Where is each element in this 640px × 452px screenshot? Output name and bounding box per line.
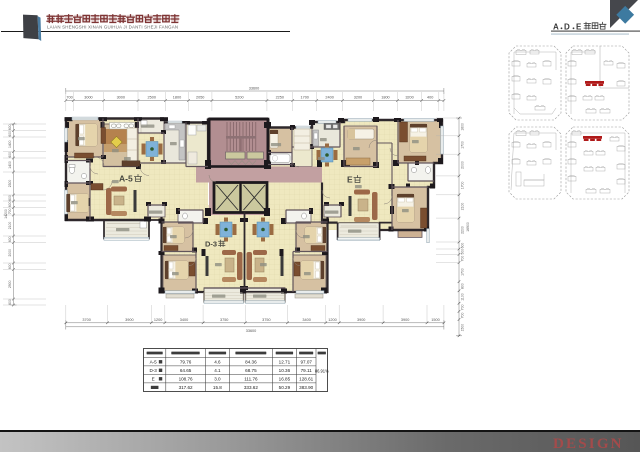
svg-text:64.65: 64.65: [180, 368, 192, 373]
svg-text:2500: 2500: [148, 96, 156, 100]
svg-text:4.1: 4.1: [214, 368, 221, 373]
svg-text:A-5: A-5: [119, 174, 133, 184]
svg-text:600: 600: [8, 201, 12, 207]
svg-text:2200: 2200: [461, 226, 465, 234]
svg-text:400: 400: [427, 96, 433, 100]
svg-text:68.75: 68.75: [245, 368, 257, 373]
svg-text:700: 700: [461, 313, 465, 319]
svg-text:4.6: 4.6: [214, 360, 221, 365]
svg-text:86.91%: 86.91%: [315, 369, 329, 374]
svg-text:1400: 1400: [8, 140, 12, 148]
svg-text:1700: 1700: [461, 268, 465, 276]
svg-text:317.62: 317.62: [179, 385, 193, 390]
svg-text:600: 600: [461, 243, 465, 249]
svg-text:700: 700: [8, 208, 12, 214]
svg-text:500: 500: [461, 249, 465, 255]
svg-text:84.36: 84.36: [245, 360, 257, 365]
svg-text:3900: 3900: [125, 318, 133, 322]
svg-text:2000: 2000: [461, 161, 465, 169]
svg-text:16.85: 16.85: [279, 377, 291, 382]
svg-text:600: 600: [8, 131, 12, 137]
svg-text:1700: 1700: [461, 141, 465, 149]
svg-text:1600: 1600: [461, 123, 465, 131]
svg-text:15.8: 15.8: [213, 385, 222, 390]
svg-text:3200: 3200: [354, 96, 362, 100]
svg-text:111.76: 111.76: [244, 377, 258, 382]
svg-text:1400: 1400: [8, 161, 12, 169]
svg-text:79.11: 79.11: [301, 368, 313, 373]
svg-text:97.07: 97.07: [300, 360, 312, 365]
svg-text:1500: 1500: [431, 318, 439, 322]
svg-text:700: 700: [461, 256, 465, 262]
svg-text:E: E: [152, 377, 155, 382]
svg-text:12.71: 12.71: [279, 360, 291, 365]
svg-text:1700: 1700: [300, 96, 308, 100]
svg-text:3750: 3750: [220, 318, 228, 322]
svg-text:5200: 5200: [235, 96, 243, 100]
svg-text:33600: 33600: [249, 87, 260, 91]
svg-text:108.76: 108.76: [179, 377, 193, 382]
svg-text:E: E: [347, 175, 353, 185]
svg-text:D: D: [564, 22, 570, 31]
svg-text:1800: 1800: [381, 96, 389, 100]
svg-text:33600: 33600: [246, 329, 257, 333]
svg-text:3000: 3000: [84, 96, 92, 100]
svg-text:3750: 3750: [262, 318, 270, 322]
svg-text:128.61: 128.61: [299, 377, 313, 382]
svg-text:LAIAN SHENGSHI XINAN GUIHUA JI: LAIAN SHENGSHI XINAN GUIHUA JI DANTI SHE…: [47, 25, 178, 30]
svg-text:2300: 2300: [8, 180, 12, 188]
svg-text:3900: 3900: [401, 318, 409, 322]
svg-text:2900: 2900: [8, 280, 12, 288]
svg-text:14200: 14200: [4, 209, 8, 219]
svg-text:700: 700: [461, 304, 465, 310]
svg-text:D-3: D-3: [205, 240, 217, 249]
svg-text:1200: 1200: [328, 318, 336, 322]
svg-text:E: E: [576, 22, 582, 31]
svg-text:2100: 2100: [461, 203, 465, 211]
svg-text:600: 600: [8, 195, 12, 201]
svg-text:2400: 2400: [325, 96, 333, 100]
svg-text:3.0: 3.0: [214, 377, 221, 382]
svg-text:1500: 1500: [461, 324, 465, 332]
svg-text:79.76: 79.76: [180, 360, 192, 365]
svg-text:700: 700: [66, 96, 72, 100]
svg-text:383.90: 383.90: [299, 385, 313, 390]
svg-text:16900: 16900: [466, 222, 470, 232]
svg-text:600: 600: [8, 152, 12, 158]
svg-text:A: A: [553, 22, 559, 31]
svg-text:333.62: 333.62: [244, 385, 258, 390]
svg-text:3400: 3400: [180, 318, 188, 322]
svg-text:600: 600: [8, 236, 12, 242]
svg-text:1800: 1800: [173, 96, 181, 100]
svg-text:10.36: 10.36: [279, 368, 291, 373]
svg-text:3700: 3700: [82, 318, 90, 322]
svg-text:2250: 2250: [276, 96, 284, 100]
svg-text:600: 600: [8, 263, 12, 269]
svg-text:600: 600: [8, 299, 12, 305]
svg-text:1700: 1700: [461, 181, 465, 189]
svg-text:3400: 3400: [302, 318, 310, 322]
svg-text:1200: 1200: [154, 318, 162, 322]
svg-text:D-3: D-3: [149, 368, 157, 373]
svg-text:1100: 1100: [461, 293, 465, 300]
svg-text:50.29: 50.29: [279, 385, 291, 390]
svg-text:800: 800: [461, 283, 465, 289]
svg-text:2100: 2100: [8, 222, 12, 230]
svg-text:3900: 3900: [357, 318, 365, 322]
svg-text:2050: 2050: [196, 96, 204, 100]
svg-text:3000: 3000: [117, 96, 125, 100]
svg-text:600: 600: [8, 124, 12, 130]
svg-text:3200: 3200: [405, 96, 413, 100]
svg-text:2000: 2000: [8, 249, 12, 257]
svg-text:A-5: A-5: [150, 360, 158, 365]
